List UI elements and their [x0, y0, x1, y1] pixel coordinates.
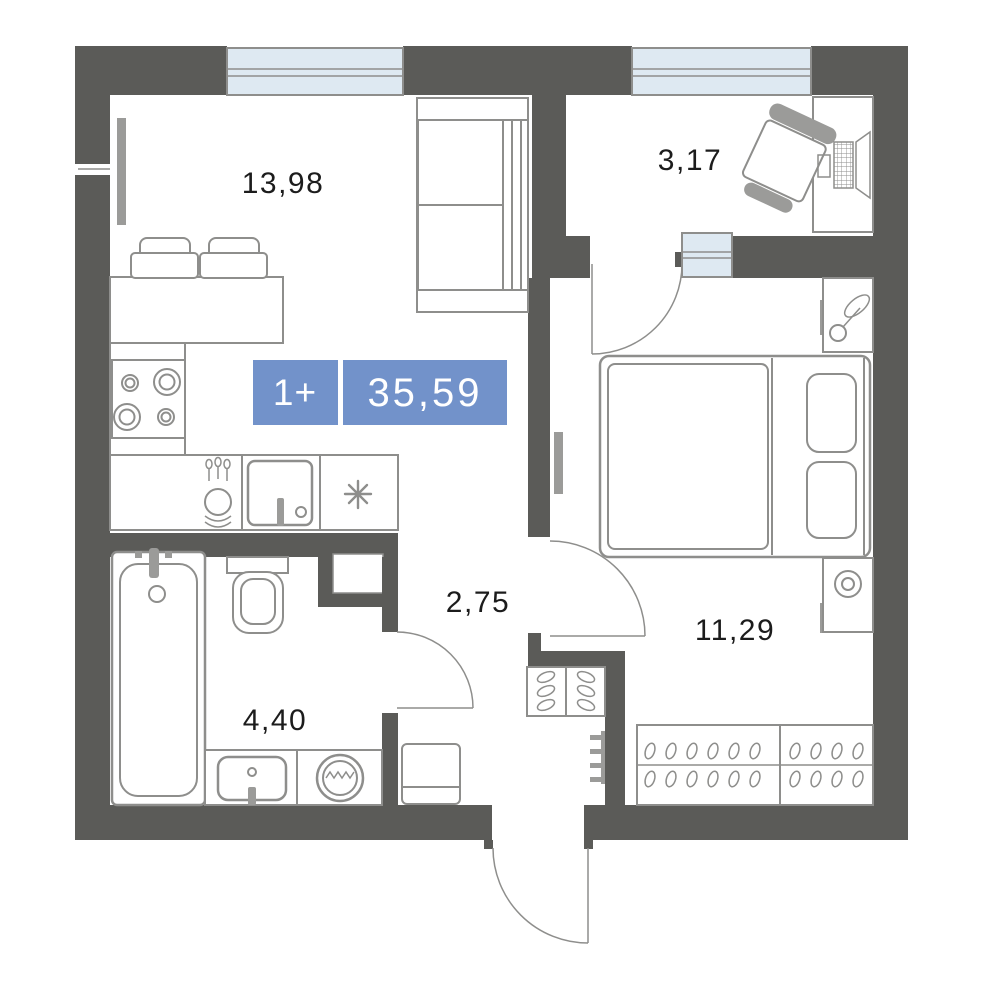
label-living-kitchen: 13,98	[242, 167, 325, 200]
toilet	[227, 557, 288, 633]
bedroom-furniture	[600, 278, 873, 805]
radiator-bedroom	[554, 432, 563, 494]
washing-machine	[317, 755, 363, 801]
nightstand-top	[823, 278, 873, 352]
sofa	[417, 98, 528, 312]
door-entrance	[493, 848, 588, 943]
label-bathroom: 4,40	[243, 704, 307, 737]
cooktop	[112, 360, 185, 438]
chair-2	[200, 238, 267, 278]
pillow-2	[807, 462, 856, 538]
balcony-window-block	[682, 233, 732, 277]
window-loggia	[632, 48, 811, 95]
bath-counter	[205, 750, 382, 805]
nightstand-bottom	[823, 558, 873, 632]
kitchen-sink	[248, 461, 312, 526]
label-loggia: 3,17	[658, 144, 722, 177]
kitchen-table	[110, 277, 283, 343]
bath-sink	[218, 757, 286, 805]
badge-type-label: 1+	[273, 372, 317, 413]
wardrobe	[637, 725, 873, 805]
badge-area-value: 35,59	[367, 371, 482, 415]
bathtub	[112, 548, 205, 805]
bed	[600, 356, 870, 557]
label-bedroom: 11,29	[695, 614, 775, 647]
shoe-cabinet	[402, 744, 460, 804]
coat-rack	[527, 667, 605, 716]
radiator-hall-comb	[590, 731, 605, 784]
door-bathroom	[397, 632, 473, 708]
radiator-living	[117, 118, 126, 225]
loggia-furniture	[733, 97, 873, 232]
kitchen-living-furniture	[110, 98, 528, 530]
chair-1	[131, 238, 198, 278]
window-living	[227, 48, 403, 95]
floor-plan-page: 13,98 3,17 2,75 11,29 4,40 1+ 35,59	[0, 0, 983, 983]
floor-plan-svg: 13,98 3,17 2,75 11,29 4,40 1+ 35,59	[0, 0, 983, 983]
pillow-1	[807, 374, 856, 452]
fridge-snowflake-icon	[345, 481, 371, 508]
type-area-badge: 1+ 35,59	[253, 360, 507, 425]
label-hallway: 2,75	[446, 586, 510, 619]
hallway-furniture	[402, 667, 605, 804]
door-balcony	[592, 264, 682, 354]
